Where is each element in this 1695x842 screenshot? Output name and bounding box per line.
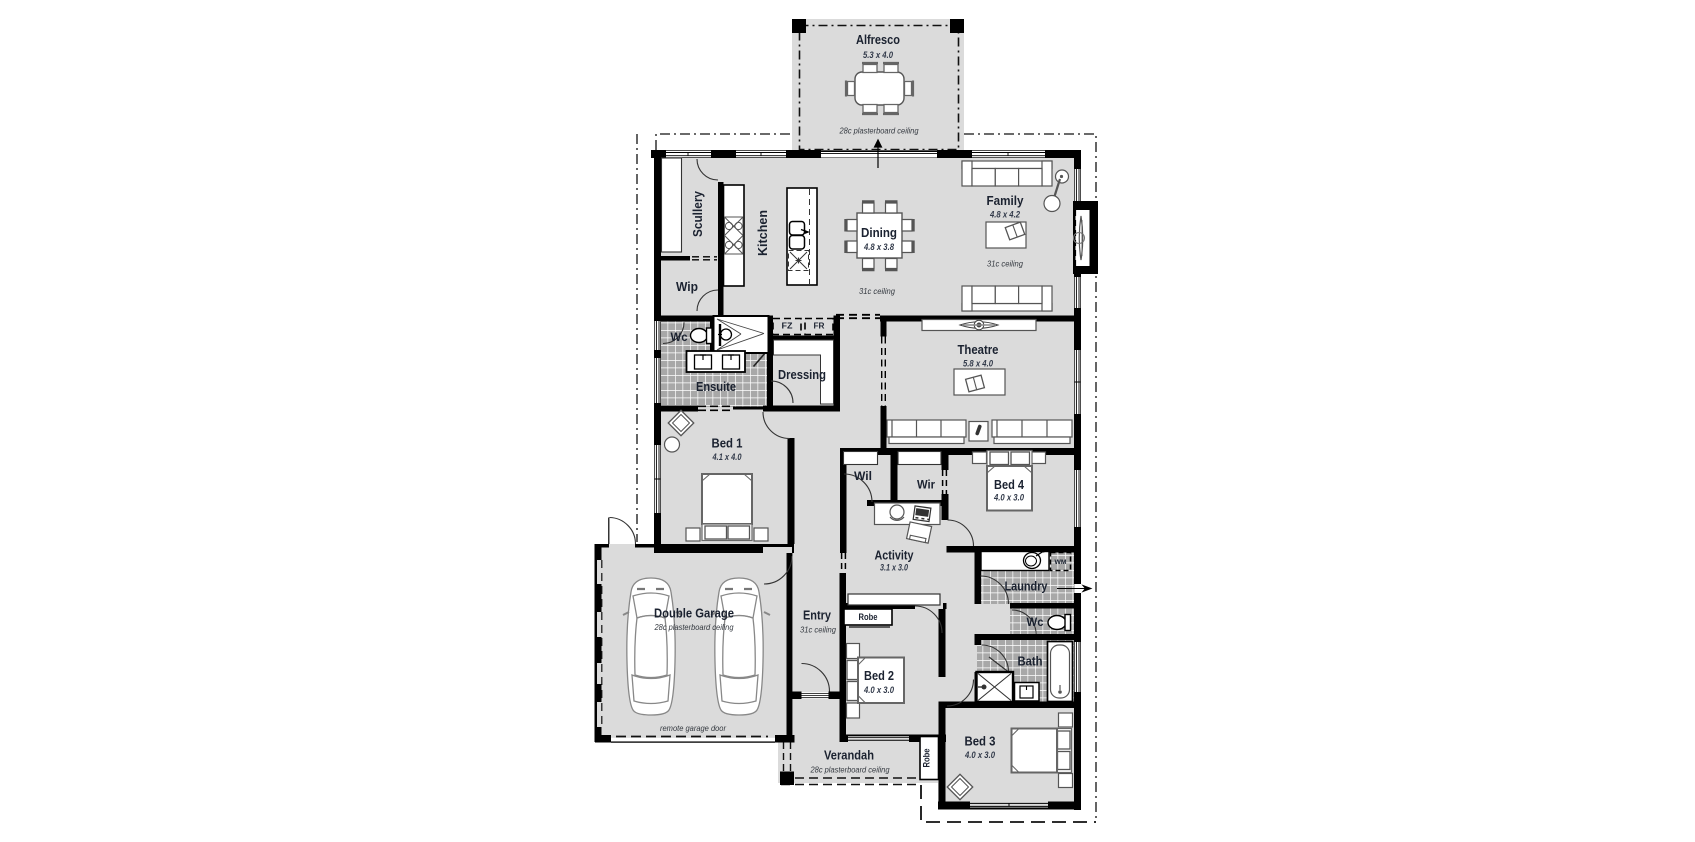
svg-text:5.3 x 4.0: 5.3 x 4.0 — [863, 50, 893, 60]
svg-text:Bath: Bath — [1018, 655, 1043, 669]
svg-text:Entry: Entry — [803, 609, 831, 623]
svg-text:4.1 x 4.0: 4.1 x 4.0 — [712, 452, 742, 462]
svg-text:Wc: Wc — [1027, 615, 1044, 629]
svg-text:28c plasterboard ceiling: 28c plasterboard ceiling — [654, 622, 734, 632]
svg-text:31c ceiling: 31c ceiling — [859, 286, 895, 296]
svg-text:4.8 x 3.8: 4.8 x 3.8 — [863, 242, 894, 252]
svg-text:4.0 x 3.0: 4.0 x 3.0 — [863, 685, 894, 695]
svg-text:Wir: Wir — [917, 478, 935, 492]
svg-text:Bed 2: Bed 2 — [864, 668, 894, 683]
svg-text:Wil: Wil — [854, 469, 872, 483]
svg-text:Alfresco: Alfresco — [856, 32, 900, 47]
svg-text:31c ceiling: 31c ceiling — [800, 625, 836, 635]
svg-text:Dining: Dining — [861, 226, 897, 240]
svg-text:Wip: Wip — [676, 280, 698, 294]
svg-text:Ensuite: Ensuite — [696, 380, 736, 394]
svg-text:4.0 x 3.0: 4.0 x 3.0 — [993, 493, 1024, 503]
svg-text:Bed 4: Bed 4 — [994, 477, 1025, 492]
svg-text:Bed 1: Bed 1 — [712, 436, 743, 451]
svg-text:31c ceiling: 31c ceiling — [987, 259, 1023, 269]
svg-text:Kitchen: Kitchen — [756, 210, 770, 256]
svg-text:Activity: Activity — [875, 549, 914, 563]
svg-text:Robe: Robe — [922, 749, 932, 768]
svg-text:4.8 x 4.2: 4.8 x 4.2 — [989, 210, 1020, 220]
svg-text:3.1 x 3.0: 3.1 x 3.0 — [880, 563, 908, 573]
svg-text:Theatre: Theatre — [958, 342, 999, 357]
svg-text:FZ: FZ — [782, 322, 793, 331]
svg-text:Family: Family — [987, 194, 1024, 208]
svg-text:Scullery: Scullery — [691, 191, 705, 237]
svg-text:Robe: Robe — [859, 612, 878, 622]
svg-text:remote garage door: remote garage door — [660, 723, 727, 733]
svg-text:Wc: Wc — [671, 330, 688, 344]
svg-text:Laundry: Laundry — [1005, 580, 1048, 594]
svg-text:WM: WM — [1055, 559, 1067, 566]
svg-text:Verandah: Verandah — [824, 748, 874, 763]
svg-text:4.0 x 3.0: 4.0 x 3.0 — [964, 750, 995, 760]
svg-text:28c plasterboard ceiling: 28c plasterboard ceiling — [810, 765, 890, 775]
svg-text:Bed 3: Bed 3 — [965, 734, 996, 749]
svg-text:Dressing: Dressing — [778, 368, 826, 382]
svg-text:FR: FR — [814, 322, 825, 331]
svg-text:Double Garage: Double Garage — [654, 606, 734, 621]
svg-text:28c plasterboard ceiling: 28c plasterboard ceiling — [839, 126, 919, 136]
svg-text:5.8 x 4.0: 5.8 x 4.0 — [963, 359, 993, 369]
